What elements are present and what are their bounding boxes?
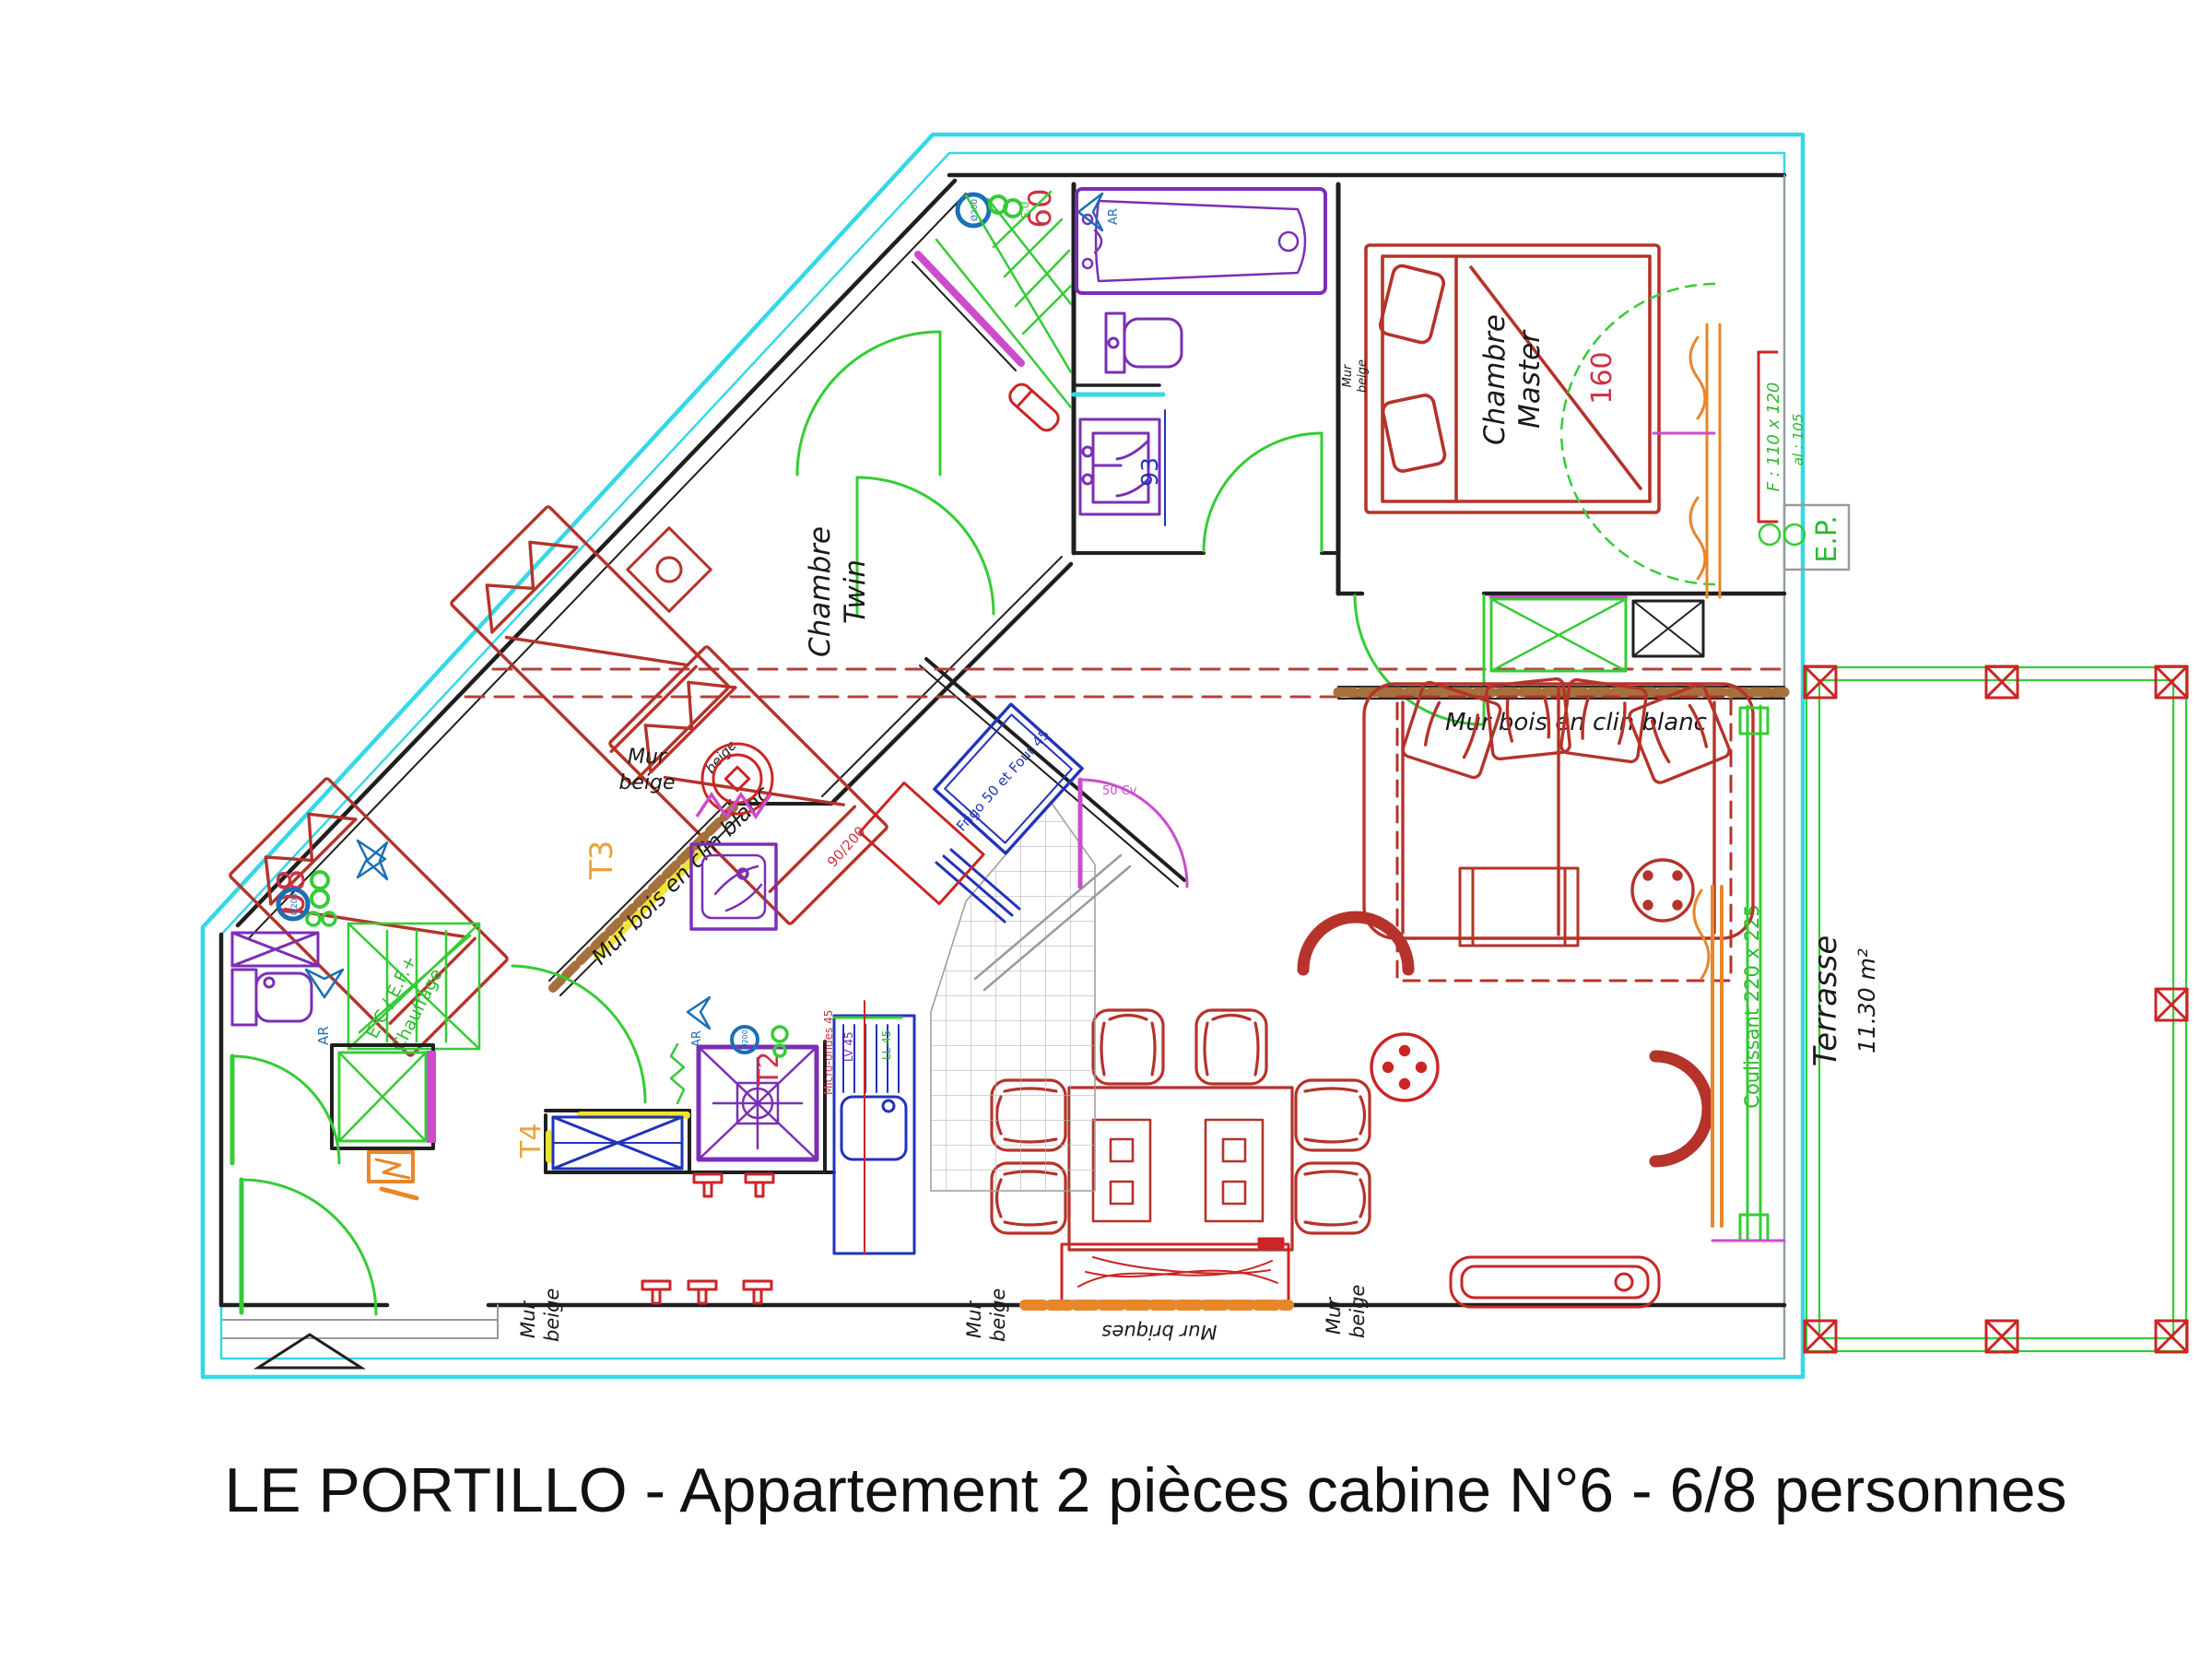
svg-text:Mur: Mur xyxy=(517,1300,539,1338)
svg-text:beige: beige xyxy=(1347,1285,1369,1338)
svg-text:Mur: Mur xyxy=(1323,1297,1345,1335)
mur-bois-label-living: Mur bois en clin blanc xyxy=(1445,709,1707,736)
brick-wall: Mur briques xyxy=(1025,1305,1288,1343)
entry-doors xyxy=(232,1056,376,1314)
armchair-left xyxy=(1303,917,1408,970)
master-wall-beige: beige xyxy=(1356,359,1370,393)
cabine-bed xyxy=(229,778,509,1057)
master-window xyxy=(1561,284,1777,597)
lave-vaisselle-label: LV 45 xyxy=(842,1031,855,1062)
coffee-table xyxy=(1460,868,1578,946)
master-door xyxy=(1355,595,1484,724)
bar-stools xyxy=(642,1174,773,1303)
twin-wall-mur: Mur xyxy=(628,746,668,769)
tv-console xyxy=(1062,1239,1288,1301)
tiled-floor xyxy=(931,802,1095,1191)
terrasse-label: Terrasse xyxy=(1807,935,1844,1067)
micro-ondes-label: Micro-ondes 45 xyxy=(822,1010,835,1095)
side-table-round xyxy=(1632,860,1693,921)
t3-tag: T3 xyxy=(583,841,620,880)
svg-text:beige: beige xyxy=(541,1288,563,1342)
bathroom-door xyxy=(1204,433,1322,551)
t4-shaft: T4 xyxy=(515,1115,687,1169)
duct60-label: 60 xyxy=(1022,188,1059,228)
t3-washbasin xyxy=(702,744,772,814)
t4-door xyxy=(512,966,684,1103)
t4-tag: T4 xyxy=(515,1124,547,1159)
electrical-panel xyxy=(369,1152,417,1198)
twin-label-2: Twin xyxy=(839,559,872,624)
twin-label-1: Chambre xyxy=(804,526,837,657)
terrasse-area-label: 11.30 m² xyxy=(1853,948,1880,1053)
pedestal-table-round xyxy=(1371,1034,1438,1100)
bathtub-drain-arrow: AR xyxy=(1078,194,1121,230)
svg-text:beige: beige xyxy=(987,1288,1009,1342)
ep-label: E.P. xyxy=(1811,515,1843,562)
kitchen-door-width: 50 Cv xyxy=(1102,784,1137,798)
living-sliding-window xyxy=(1694,706,1784,1241)
left-wc xyxy=(232,933,318,1025)
closet-sliding-door xyxy=(918,254,1021,363)
dining-table xyxy=(1069,1088,1292,1250)
t2-shower: T2 xyxy=(699,1047,817,1159)
ar-label-bath: AR xyxy=(1107,208,1121,225)
sofa xyxy=(1364,678,1753,938)
master-bed-width: 160 xyxy=(1586,351,1618,404)
mur-briques-label: Mur briques xyxy=(1101,1321,1217,1343)
plan-title: LE PORTILLO - Appartement 2 pièces cabin… xyxy=(224,1455,2066,1525)
wood-clad-wall-living: Mur bois en clin blanc xyxy=(1338,687,1784,736)
bathtub xyxy=(1077,189,1325,293)
window-f-label: F : 110 x 120 xyxy=(1764,382,1783,492)
placemat-right xyxy=(1206,1120,1263,1221)
lave-linge-label: LL 45 xyxy=(880,1030,893,1060)
ar-label-left: AR xyxy=(315,1026,332,1045)
svg-text:Mur: Mur xyxy=(963,1300,985,1338)
armchair-right xyxy=(1655,1056,1708,1161)
master-label-1: Chambre xyxy=(1478,314,1512,445)
entrance-marker xyxy=(258,1335,361,1368)
master-label-2: Master xyxy=(1513,329,1547,429)
diam-label-kitchen: Ø200 xyxy=(740,1030,749,1050)
window-allege-label: al : 105 xyxy=(1790,414,1806,466)
shoe-shape xyxy=(1006,381,1063,434)
kitchen: Frigo 50 et Four 45 Micro-ondes 45 LV 45… xyxy=(822,704,1187,1253)
placemat-left xyxy=(1093,1120,1150,1221)
floor-plan-page: Terrasse 11.30 m² Coulissant 220 x 225 9 xyxy=(0,0,2212,1659)
bottom-wall-labels: Mur beige Mur beige Mur beige xyxy=(517,1285,1369,1342)
svg-text:93: 93 xyxy=(1136,457,1163,487)
bathroom: 93 AR xyxy=(1074,189,1325,551)
master-wardrobe xyxy=(1491,597,1703,671)
floor-plan-drawing: Terrasse 11.30 m² Coulissant 220 x 225 9 xyxy=(0,0,2212,1659)
master-bedroom: Chambre Master 160 Mur beige F : 110 x 1… xyxy=(1341,245,1849,724)
master-wall-mur: Mur xyxy=(1341,363,1355,387)
entry-shaft xyxy=(332,1045,436,1148)
diam-label-left: Ø200 xyxy=(289,893,300,916)
entry-threshold xyxy=(223,1305,498,1338)
ar-label-kitchen: AR xyxy=(690,1030,704,1047)
bench-seat xyxy=(1451,1257,1659,1307)
twin-wall-beige: beige xyxy=(618,771,675,794)
terrace: Terrasse 11.30 m² xyxy=(1805,666,2187,1352)
toilet xyxy=(1106,313,1182,372)
